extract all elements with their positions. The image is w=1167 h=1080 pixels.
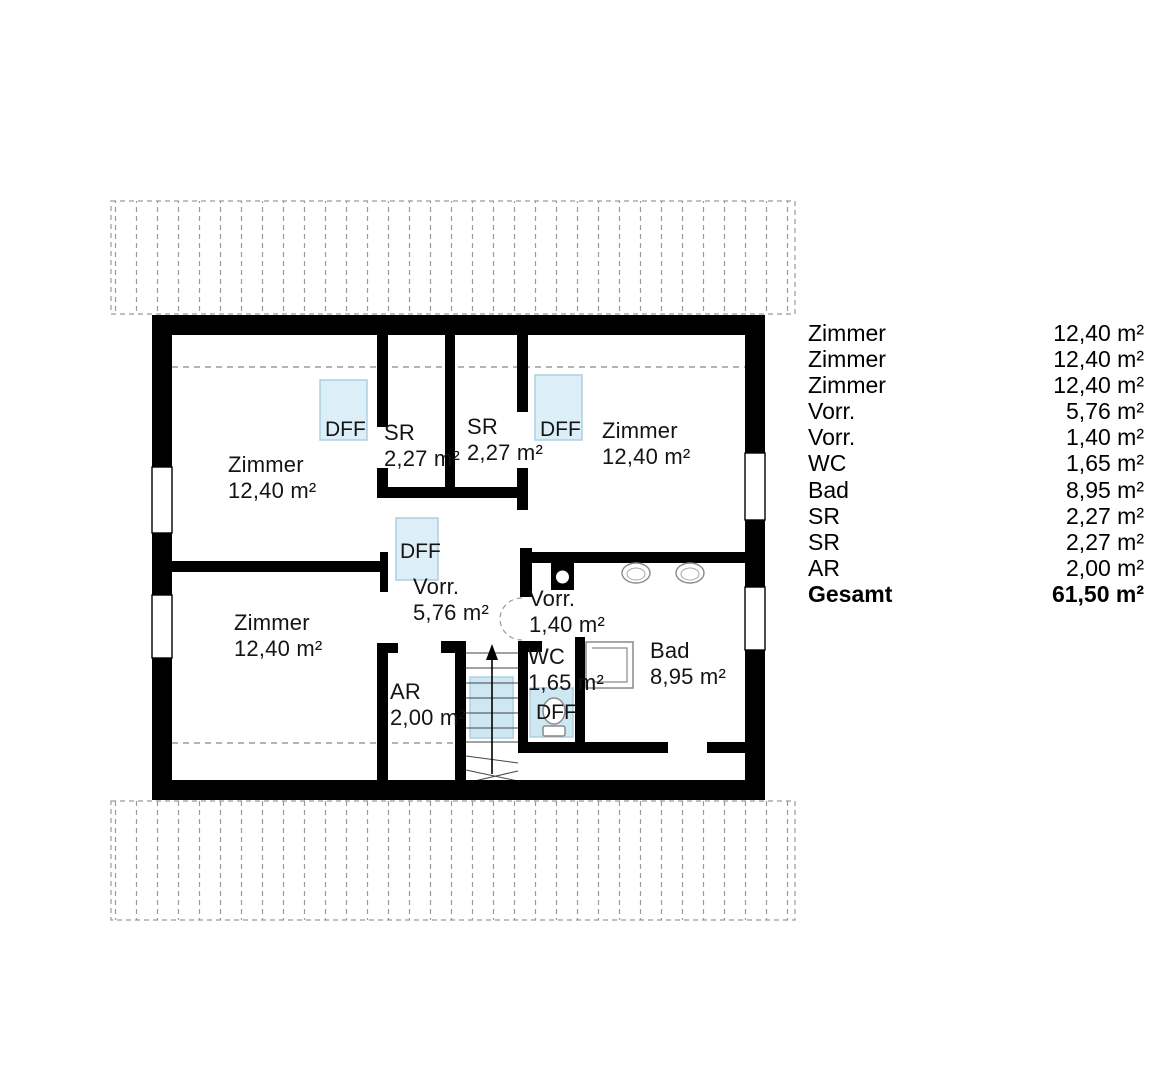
legend-room-area: 5,76 m² bbox=[1066, 398, 1144, 424]
legend-room-name: Zimmer bbox=[808, 320, 886, 346]
room-label-zimmer-top-right: Zimmer 12,40 m² bbox=[602, 418, 690, 470]
legend-row: Vorr. 5,76 m² bbox=[808, 398, 1144, 424]
legend-room-area: 1,65 m² bbox=[1066, 450, 1144, 476]
legend-room-name: SR bbox=[808, 529, 840, 555]
room-label-wc: WC 1,65 m² bbox=[528, 644, 604, 696]
room-name: Vorr. bbox=[413, 574, 489, 600]
skylight-label-top-right: DFF bbox=[540, 419, 581, 441]
legend-row: Bad 8,95 m² bbox=[808, 477, 1144, 503]
room-name: Zimmer bbox=[234, 610, 322, 636]
legend-room-name: Bad bbox=[808, 477, 849, 503]
legend-row: SR 2,27 m² bbox=[808, 529, 1144, 555]
legend-room-name: SR bbox=[808, 503, 840, 529]
skylight-label-vorraum: DFF bbox=[400, 541, 441, 563]
roof-overhang-top bbox=[111, 201, 795, 314]
legend-row: Zimmer 12,40 m² bbox=[808, 372, 1144, 398]
room-label-zimmer-top-left: Zimmer 12,40 m² bbox=[228, 452, 316, 504]
legend-room-area: 12,40 m² bbox=[1053, 372, 1144, 398]
legend-room-area: 12,40 m² bbox=[1053, 346, 1144, 372]
legend-room-area: 2,27 m² bbox=[1066, 529, 1144, 555]
window-left-upper bbox=[152, 467, 172, 533]
room-label-sr-right: SR 2,27 m² bbox=[467, 414, 543, 466]
floor-plan-page: Zimmer 12,40 m² Zimmer 12,40 m² Zimmer 1… bbox=[0, 0, 1167, 1080]
legend-row: AR 2,00 m² bbox=[808, 555, 1144, 581]
sink-right bbox=[676, 563, 704, 583]
room-area: 12,40 m² bbox=[234, 636, 322, 662]
legend-room-name: Zimmer bbox=[808, 372, 886, 398]
legend-room-area: 1,40 m² bbox=[1066, 424, 1144, 450]
room-area: 2,27 m² bbox=[467, 440, 543, 466]
room-label-ar: AR 2,00 m² bbox=[390, 679, 466, 731]
room-area: 1,65 m² bbox=[528, 670, 604, 696]
legend-room-name: Zimmer bbox=[808, 346, 886, 372]
window-right-lower bbox=[745, 587, 765, 650]
room-label-zimmer-bottom-left: Zimmer 12,40 m² bbox=[234, 610, 322, 662]
staircase bbox=[466, 644, 518, 782]
room-name: SR bbox=[384, 420, 460, 446]
room-label-bad: Bad 8,95 m² bbox=[650, 638, 726, 690]
room-name: SR bbox=[467, 414, 543, 440]
legend-row-total: Gesamt 61,50 m² bbox=[808, 581, 1144, 607]
legend-total-name: Gesamt bbox=[808, 581, 892, 607]
stair-arrow-head bbox=[486, 644, 498, 660]
room-label-vorraum-main: Vorr. 5,76 m² bbox=[413, 574, 489, 626]
room-area: 12,40 m² bbox=[228, 478, 316, 504]
window-left-lower bbox=[152, 595, 172, 658]
legend-row: Vorr. 1,40 m² bbox=[808, 424, 1144, 450]
area-legend: Zimmer 12,40 m² Zimmer 12,40 m² Zimmer 1… bbox=[808, 320, 1144, 607]
door-swing-arc bbox=[500, 598, 522, 640]
room-area: 2,00 m² bbox=[390, 705, 466, 731]
legend-room-area: 2,00 m² bbox=[1066, 555, 1144, 581]
room-name: Zimmer bbox=[602, 418, 690, 444]
room-name: Bad bbox=[650, 638, 726, 664]
room-area: 8,95 m² bbox=[650, 664, 726, 690]
legend-row: Zimmer 12,40 m² bbox=[808, 320, 1144, 346]
legend-room-name: AR bbox=[808, 555, 840, 581]
room-name: WC bbox=[528, 644, 604, 670]
room-name: AR bbox=[390, 679, 466, 705]
room-label-sr-left: SR 2,27 m² bbox=[384, 420, 460, 472]
skylight-label-top-left: DFF bbox=[325, 419, 366, 441]
legend-room-area: 8,95 m² bbox=[1066, 477, 1144, 503]
room-label-vorraum-small: Vorr. 1,40 m² bbox=[529, 586, 605, 638]
room-area: 5,76 m² bbox=[413, 600, 489, 626]
sink-left bbox=[622, 563, 650, 583]
legend-row: SR 2,27 m² bbox=[808, 503, 1144, 529]
legend-total-area: 61,50 m² bbox=[1052, 581, 1144, 607]
legend-room-area: 12,40 m² bbox=[1053, 320, 1144, 346]
window-right-upper bbox=[745, 453, 765, 520]
room-name: Vorr. bbox=[529, 586, 605, 612]
legend-room-name: Vorr. bbox=[808, 424, 855, 450]
legend-row: WC 1,65 m² bbox=[808, 450, 1144, 476]
roof-overhang-bottom bbox=[111, 801, 795, 920]
legend-room-area: 2,27 m² bbox=[1066, 503, 1144, 529]
skylight-label-wc: DFF bbox=[536, 702, 577, 724]
room-area: 2,27 m² bbox=[384, 446, 460, 472]
room-name: Zimmer bbox=[228, 452, 316, 478]
room-area: 1,40 m² bbox=[529, 612, 605, 638]
legend-row: Zimmer 12,40 m² bbox=[808, 346, 1144, 372]
legend-room-name: WC bbox=[808, 450, 846, 476]
room-area: 12,40 m² bbox=[602, 444, 690, 470]
legend-room-name: Vorr. bbox=[808, 398, 855, 424]
